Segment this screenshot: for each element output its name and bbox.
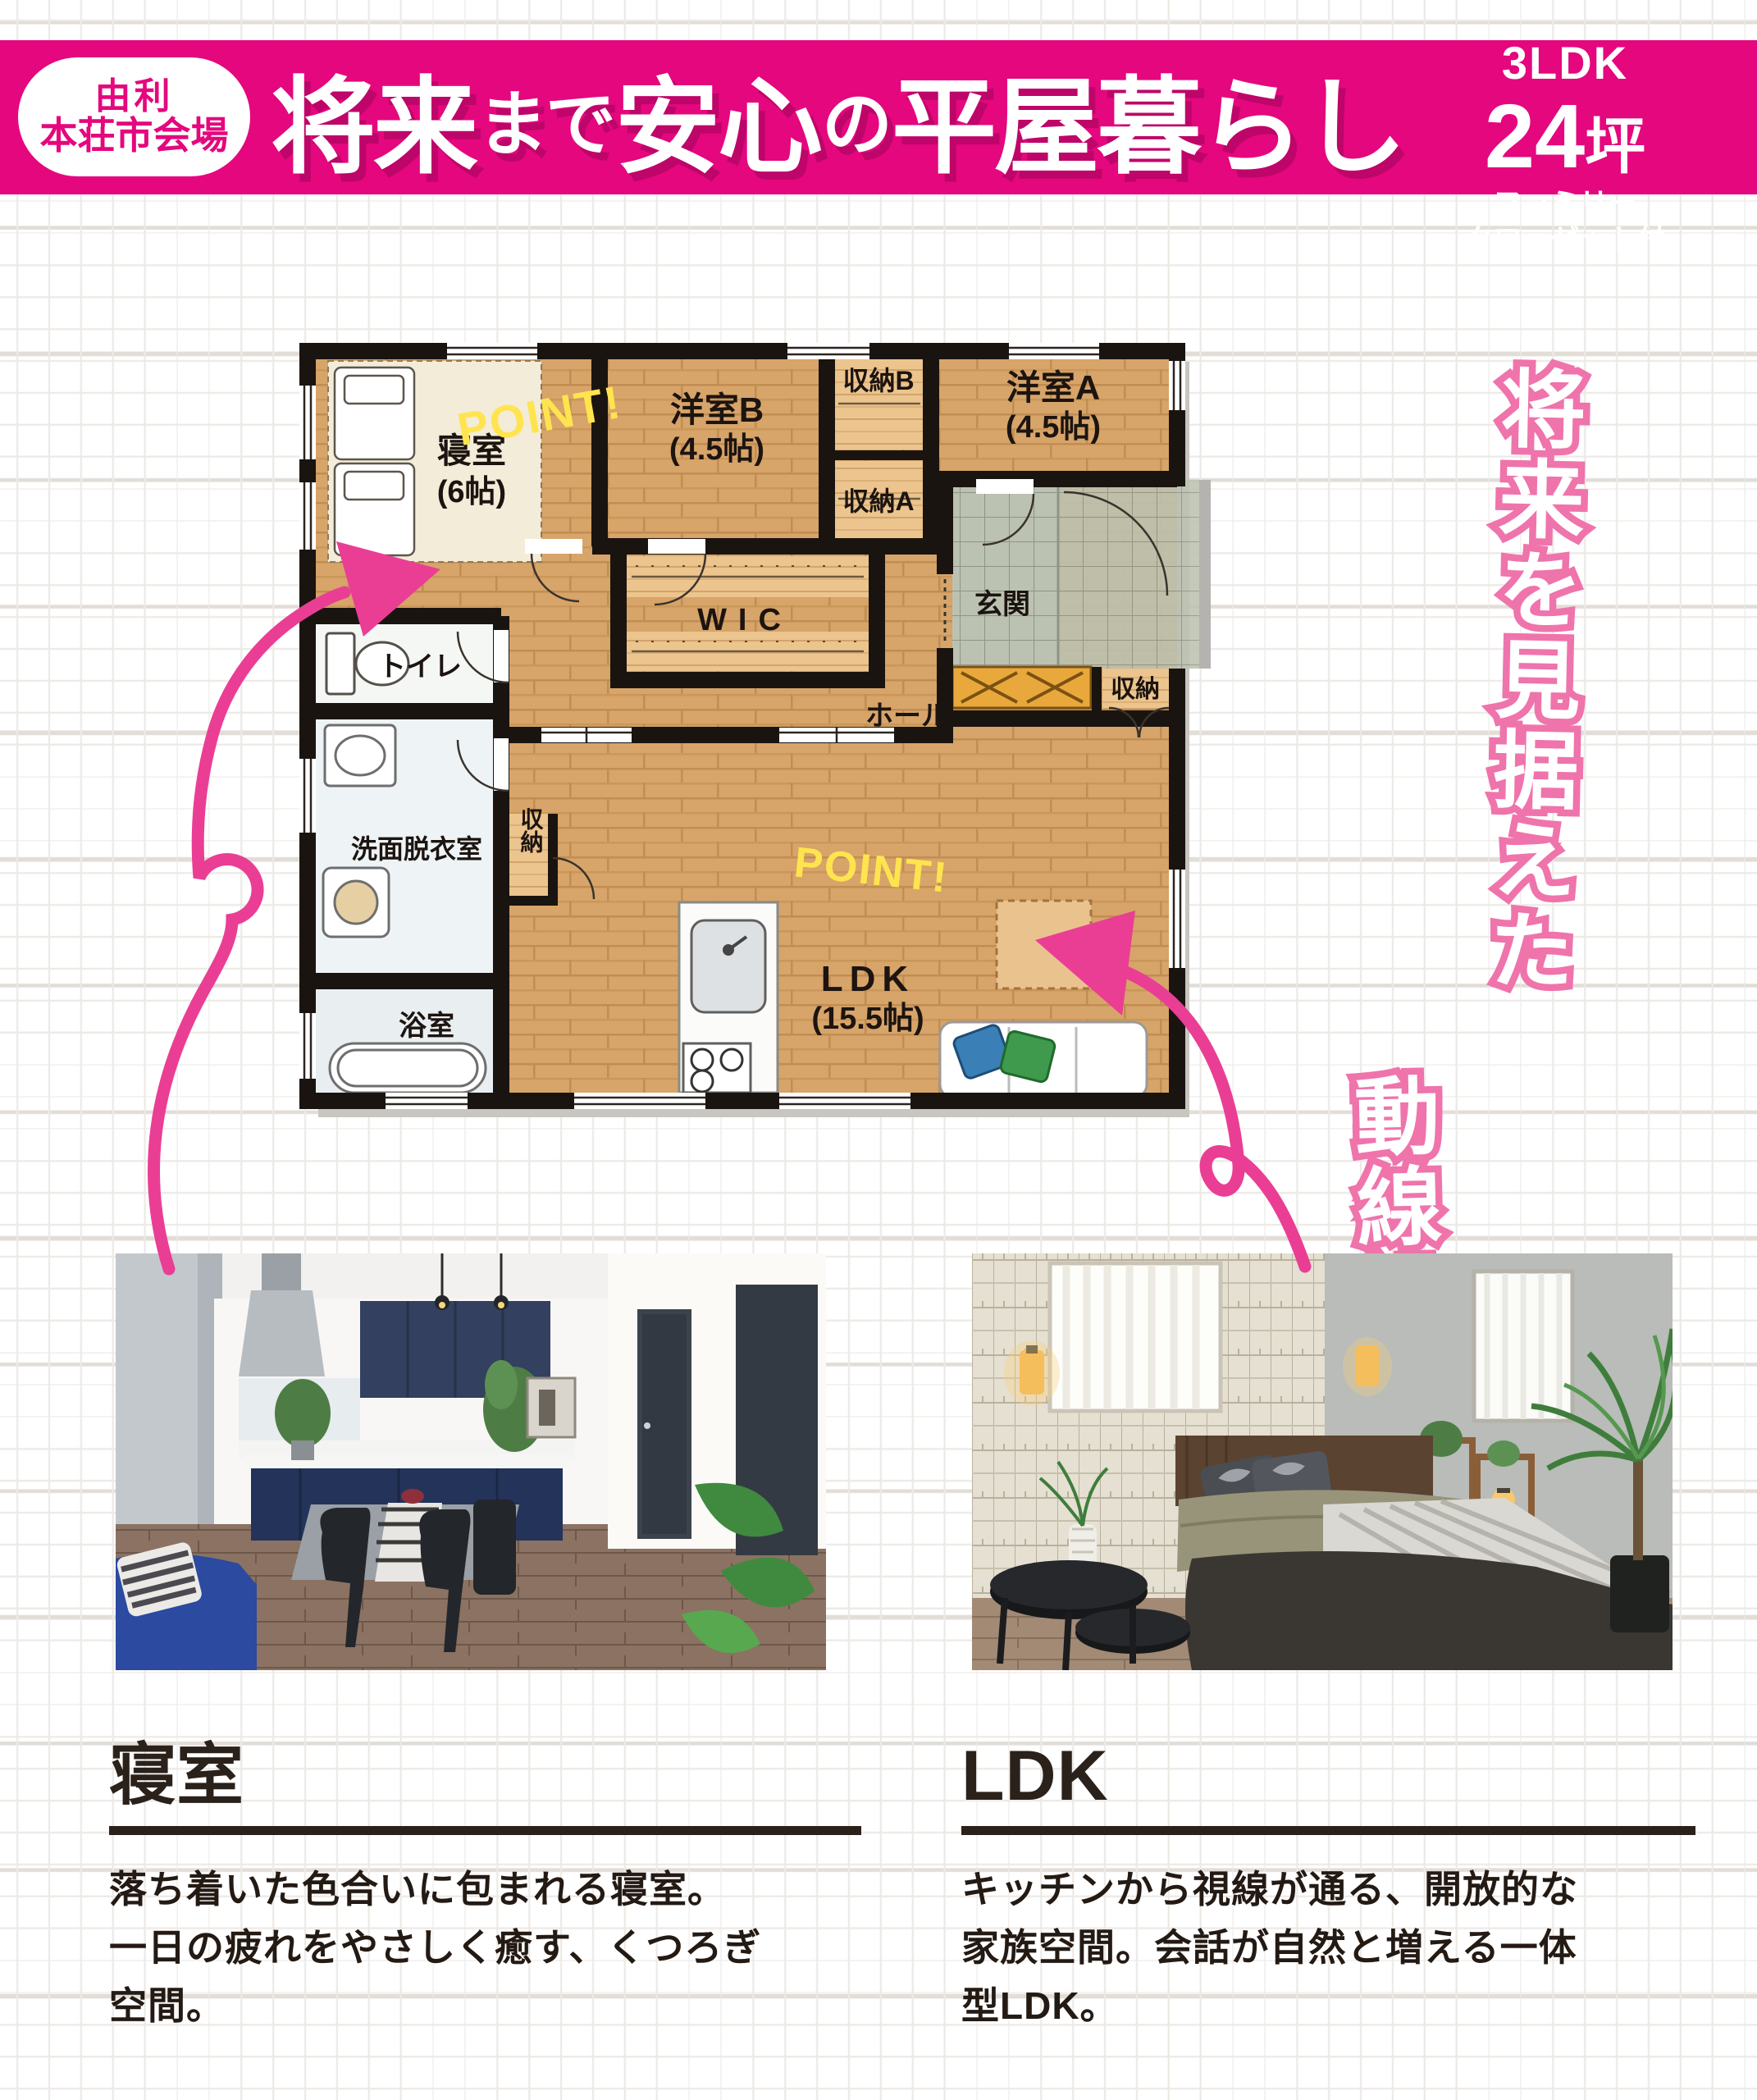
label-bedroom-size: (6帖) [437, 475, 506, 509]
label-shuno-small: 収納 [518, 807, 544, 853]
caption-bedroom-title: 寝室 [109, 1742, 244, 1810]
caption-bedroom-rule [109, 1826, 861, 1835]
caption-ldk-text: キッチンから視線が通る、開放的な 家族空間。会話が自然と増える一体 型LDK。 [961, 1860, 1578, 2035]
photo-kitchen-dining [116, 1253, 826, 1670]
photo-bedroom [972, 1253, 1676, 1670]
caption-bedroom-line: 一日の疲れをやさしく癒す、くつろぎ [109, 1919, 761, 1977]
caption-bedroom-line: 落ち着いた色合いに包まれる寝室。 [109, 1860, 761, 1919]
caption-ldk-title: LDK [961, 1741, 1109, 1811]
caption-ldk-line: キッチンから視線が通る、開放的な [961, 1860, 1578, 1919]
label-shuno-ldk: 収納 [1111, 676, 1160, 703]
floorplan: 寝室 (6帖) 洋室B (4.5帖) 洋室A (4.5帖) 収納B 収納A WI… [299, 343, 1211, 1117]
label-shuno-a: 収納A [842, 486, 914, 516]
label-yoshitsu-b: 洋室B [670, 390, 764, 429]
flyer-page: { "header": { "venue_badge": { "line1": … [0, 0, 1757, 2100]
label-yoshitsu-a-size: (4.5帖) [1006, 410, 1101, 445]
caption-bedroom-text: 落ち着いた色合いに包まれる寝室。 一日の疲れをやさしく癒す、くつろぎ 空間。 [109, 1860, 761, 2035]
label-toilet: トイレ [378, 651, 462, 682]
label-ldk: LDK [821, 959, 915, 999]
label-hall: ホール [865, 701, 949, 732]
label-yoshitsu-b-size: (4.5帖) [669, 432, 764, 467]
label-genkan: 玄関 [974, 589, 1030, 620]
label-wic: WIC [697, 603, 792, 637]
scene-svg: 寝室 (6帖) 洋室B (4.5帖) 洋室A (4.5帖) 収納B 収納A WI… [0, 0, 1757, 2100]
caption-bedroom-line: 空間。 [109, 1977, 761, 2035]
label-ldk-size: (15.5帖) [811, 1002, 924, 1036]
label-shuno-b: 収納B [842, 366, 914, 395]
caption-ldk-line: 家族空間。会話が自然と増える一体 [961, 1919, 1578, 1977]
label-senmen: 洗面脱衣室 [351, 834, 482, 864]
caption-ldk-line: 型LDK。 [961, 1977, 1578, 2035]
label-bath: 浴室 [399, 1010, 454, 1042]
label-yoshitsu-a: 洋室A [1006, 368, 1100, 407]
caption-ldk-rule [961, 1826, 1695, 1835]
